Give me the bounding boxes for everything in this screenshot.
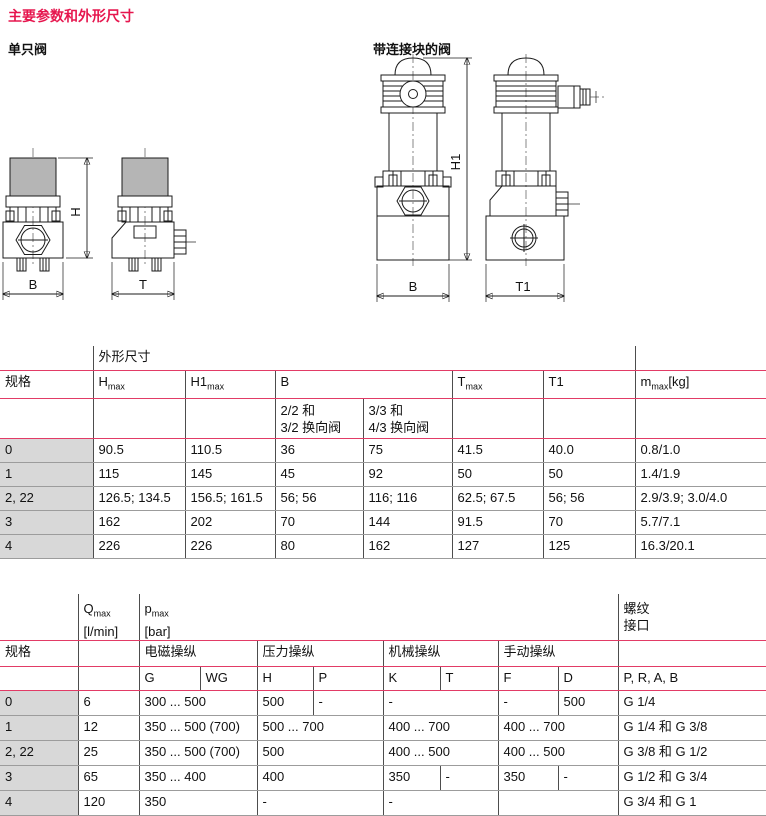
t2-subcol-d: D xyxy=(558,666,618,690)
t2-subcol-wg: WG xyxy=(200,666,257,690)
table-cell: 162 xyxy=(93,510,185,534)
table-row: 0 90.5 110.5 36 75 41.5 40.0 0.8/1.0 xyxy=(0,438,766,462)
table-cell: 41.5 xyxy=(452,438,543,462)
table-cell: - xyxy=(383,790,498,815)
spacer-cell xyxy=(618,640,766,666)
dim-label-h: H xyxy=(68,207,83,216)
t1-b-subcol-1: 2/2 和3/2 换向阀 xyxy=(275,398,363,438)
table-cell: 62.5; 67.5 xyxy=(452,486,543,510)
table-cell: - xyxy=(498,690,558,715)
table-cell: 500 xyxy=(257,740,383,765)
table-cell: 400 xyxy=(257,765,383,790)
table-cell: G 1/2 和 G 3/4 xyxy=(618,765,766,790)
t2-col-pmax: pmax[bar] xyxy=(139,594,618,640)
table-cell: 400 ... 700 xyxy=(498,715,618,740)
table-cell: 115 xyxy=(93,462,185,486)
spec-cell: 1 xyxy=(0,462,93,486)
table-cell: 500 xyxy=(558,690,618,715)
spec-cell: 0 xyxy=(0,690,78,715)
spec-cell: 0 xyxy=(0,438,93,462)
table-cell: 300 ... 500 xyxy=(139,690,257,715)
spacer-cell xyxy=(185,398,275,438)
t1-col-b: B xyxy=(275,370,452,398)
dim-label-b: B xyxy=(409,279,418,294)
t1-col-hmax: Hmax xyxy=(93,370,185,398)
table-cell: G 1/4 xyxy=(618,690,766,715)
table-cell: - xyxy=(440,765,498,790)
table-cell: 350 xyxy=(498,765,558,790)
table-row: 0 6 300 ... 500 500 - - - 500 G 1/4 xyxy=(0,690,766,715)
single-valve-drawing: H B T xyxy=(0,142,200,312)
table-cell: 350 ... 400 xyxy=(139,765,257,790)
spec-cell: 2, 22 xyxy=(0,486,93,510)
table-cell: - xyxy=(313,690,383,715)
table-cell: G 3/8 和 G 1/2 xyxy=(618,740,766,765)
table-cell: 116; 116 xyxy=(363,486,452,510)
table-cell: G 3/4 和 G 1 xyxy=(618,790,766,815)
table-cell: 36 xyxy=(275,438,363,462)
dim-label-t1: T1 xyxy=(515,279,530,294)
dim-label-h1: H1 xyxy=(448,154,463,171)
table-row: 4 120 350 - - G 3/4 和 G 1 xyxy=(0,790,766,815)
table-cell: 0.8/1.0 xyxy=(635,438,766,462)
spacer-cell xyxy=(0,666,78,690)
table-cell: G 1/4 和 G 3/8 xyxy=(618,715,766,740)
table-cell xyxy=(498,790,618,815)
table-cell: 162 xyxy=(363,534,452,558)
table-cell: 400 ... 700 xyxy=(383,715,498,740)
table-cell: 45 xyxy=(275,462,363,486)
table-cell: 110.5 xyxy=(185,438,275,462)
t2-subcol-f: F xyxy=(498,666,558,690)
table-cell: 65 xyxy=(78,765,139,790)
table-cell: 125 xyxy=(543,534,635,558)
table-cell: 145 xyxy=(185,462,275,486)
spec-cell: 3 xyxy=(0,510,93,534)
t1-col-h1max: H1max xyxy=(185,370,275,398)
table-row: 1 12 350 ... 500 (700) 500 ... 700 400 .… xyxy=(0,715,766,740)
table-row: 3 65 350 ... 400 400 350 - 350 - G 1/2 和… xyxy=(0,765,766,790)
table-row: 4 226 226 80 162 127 125 16.3/20.1 xyxy=(0,534,766,558)
table-cell: 40.0 xyxy=(543,438,635,462)
page-title: 主要参数和外形尺寸 xyxy=(8,6,134,26)
spec-cell: 2, 22 xyxy=(0,740,78,765)
t2-group-manual: 手动操纵 xyxy=(498,640,618,666)
t2-subcol-k: K xyxy=(383,666,440,690)
table-cell: 50 xyxy=(452,462,543,486)
spacer-cell xyxy=(635,346,766,370)
table-cell: 25 xyxy=(78,740,139,765)
t2-subcol-p: P xyxy=(313,666,383,690)
table-cell: 350 xyxy=(139,790,257,815)
table-cell: 92 xyxy=(363,462,452,486)
t1-col-m: mmax[kg] xyxy=(635,370,766,398)
table-row: 1 115 145 45 92 50 50 1.4/1.9 xyxy=(0,462,766,486)
t2-group-mechanical: 机械操纵 xyxy=(383,640,498,666)
t2-spec-header: 规格 xyxy=(0,640,78,666)
table-cell: 70 xyxy=(543,510,635,534)
table-cell: 6 xyxy=(78,690,139,715)
single-valve-front-view: H B xyxy=(3,148,93,300)
table-cell: 500 xyxy=(257,690,313,715)
table-cell: 90.5 xyxy=(93,438,185,462)
table-cell: 75 xyxy=(363,438,452,462)
spacer-cell xyxy=(93,398,185,438)
t1-col-tmax: Tmax xyxy=(452,370,543,398)
t1-group-header: 外形尺寸 xyxy=(93,346,635,370)
t1-b-subcol-2: 3/3 和4/3 换向阀 xyxy=(363,398,452,438)
block-valve-side-view: T1 xyxy=(486,54,604,302)
spacer-cell xyxy=(0,346,93,370)
table-cell: 70 xyxy=(275,510,363,534)
single-valve-side-view: T xyxy=(112,148,196,300)
table-cell: 2.9/3.9; 3.0/4.0 xyxy=(635,486,766,510)
table-cell: 12 xyxy=(78,715,139,740)
dim-label-b: B xyxy=(29,277,38,292)
spec-cell: 4 xyxy=(0,534,93,558)
spec-cell: 4 xyxy=(0,790,78,815)
spacer-cell xyxy=(0,398,93,438)
table-cell: 5.7/7.1 xyxy=(635,510,766,534)
table-cell: 500 ... 700 xyxy=(257,715,383,740)
table-cell: 127 xyxy=(452,534,543,558)
block-valve-front-view: H1 B xyxy=(375,54,472,302)
spacer-cell xyxy=(635,398,766,438)
t2-col-thread: 螺纹接口 xyxy=(618,594,766,640)
spacer-cell xyxy=(0,594,78,640)
table-cell: 16.3/20.1 xyxy=(635,534,766,558)
parameters-table: Qmax[l/min] pmax[bar] 螺纹接口 规格 电磁操纵 压力操纵 … xyxy=(0,594,766,816)
table-cell: - xyxy=(383,690,498,715)
t2-group-solenoid: 电磁操纵 xyxy=(139,640,257,666)
dim-label-t: T xyxy=(139,277,147,292)
table-cell: 350 xyxy=(383,765,440,790)
table-cell: 400 ... 500 xyxy=(383,740,498,765)
block-valve-drawing: H1 B xyxy=(360,50,610,312)
table-cell: 202 xyxy=(185,510,275,534)
table-row: 2, 22 126.5; 134.5 156.5; 161.5 56; 56 1… xyxy=(0,486,766,510)
t2-subcol-t: T xyxy=(440,666,498,690)
table-cell: 120 xyxy=(78,790,139,815)
t1-spec-header: 规格 xyxy=(0,370,93,398)
table-cell: 56; 56 xyxy=(543,486,635,510)
table-cell: 56; 56 xyxy=(275,486,363,510)
spacer-cell xyxy=(543,398,635,438)
t2-subcol-g: G xyxy=(139,666,200,690)
spec-cell: 3 xyxy=(0,765,78,790)
table-cell: 126.5; 134.5 xyxy=(93,486,185,510)
table-cell: 144 xyxy=(363,510,452,534)
t2-subcol-h: H xyxy=(257,666,313,690)
t2-col-qmax: Qmax[l/min] xyxy=(78,594,139,640)
table-cell: 50 xyxy=(543,462,635,486)
table-cell: 350 ... 500 (700) xyxy=(139,740,257,765)
table-cell: 80 xyxy=(275,534,363,558)
table-cell: - xyxy=(257,790,383,815)
table-cell: 226 xyxy=(185,534,275,558)
dimensions-table: 外形尺寸 规格 Hmax H1max B Tmax T1 mmax[kg] 2/… xyxy=(0,346,766,559)
t2-group-pressure: 压力操纵 xyxy=(257,640,383,666)
table-cell: 350 ... 500 (700) xyxy=(139,715,257,740)
spacer-cell xyxy=(452,398,543,438)
spacer-cell xyxy=(78,666,139,690)
table-cell: 91.5 xyxy=(452,510,543,534)
table-cell: - xyxy=(558,765,618,790)
table-cell: 1.4/1.9 xyxy=(635,462,766,486)
table-row: 3 162 202 70 144 91.5 70 5.7/7.1 xyxy=(0,510,766,534)
table-cell: 226 xyxy=(93,534,185,558)
single-valve-label: 单只阀 xyxy=(8,39,47,58)
table-cell: 400 ... 500 xyxy=(498,740,618,765)
spec-cell: 1 xyxy=(0,715,78,740)
table-cell: 156.5; 161.5 xyxy=(185,486,275,510)
t2-ports-header: P, R, A, B xyxy=(618,666,766,690)
table-row: 2, 22 25 350 ... 500 (700) 500 400 ... 5… xyxy=(0,740,766,765)
t1-col-t1: T1 xyxy=(543,370,635,398)
spacer-cell xyxy=(78,640,139,666)
